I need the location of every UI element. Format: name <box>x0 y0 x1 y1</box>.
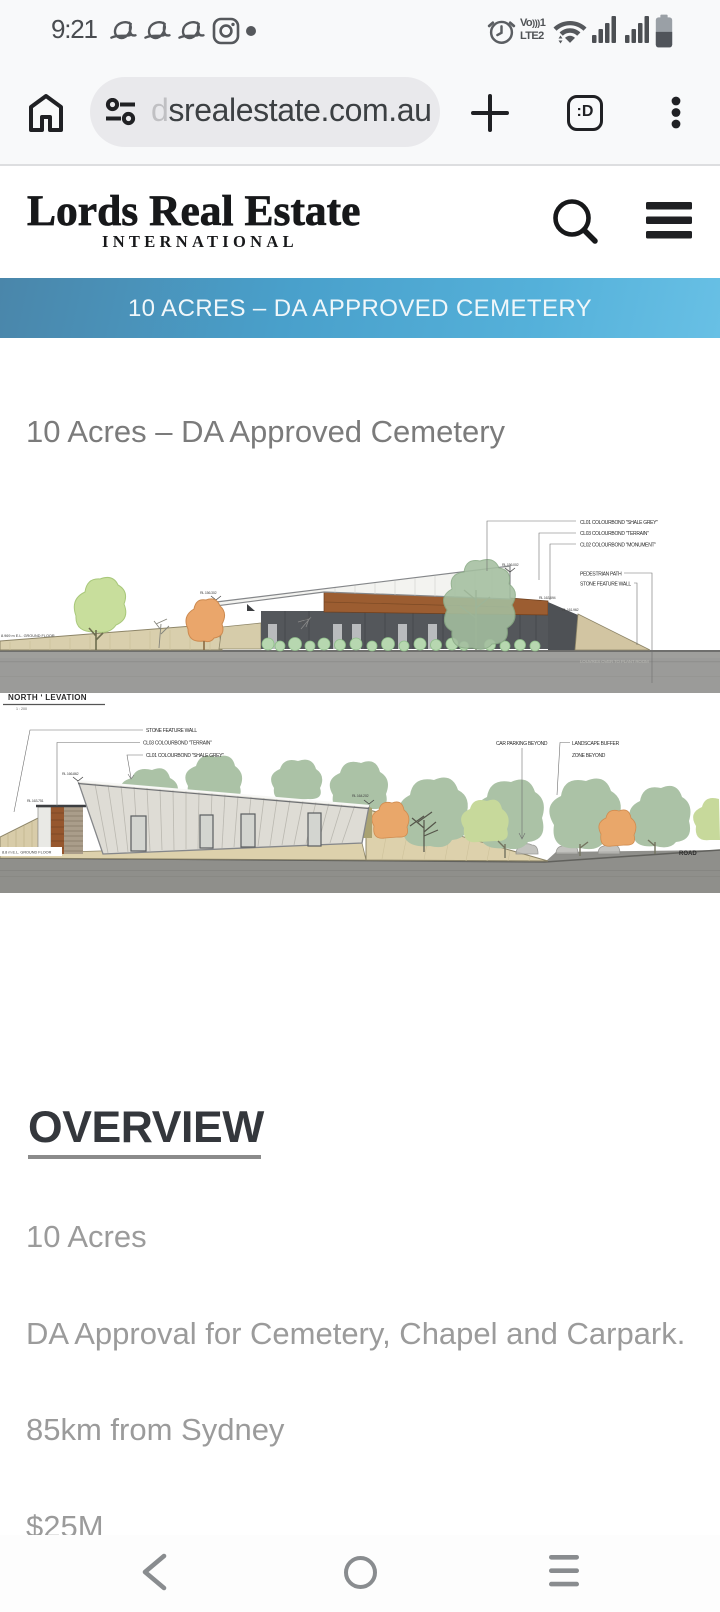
svg-text:CL02 COLOURBOND "MONUMENT": CL02 COLOURBOND "MONUMENT" <box>580 543 656 549</box>
svg-text:PEDESTRIAN PATH: PEDESTRIAN PATH <box>580 572 622 578</box>
svg-text:8.8 m E.L. GROUND FLOOR: 8.8 m E.L. GROUND FLOOR <box>2 851 52 855</box>
svg-text:RL 156.002: RL 156.002 <box>502 563 519 567</box>
svg-text:RL 163.751: RL 163.751 <box>27 799 44 803</box>
svg-text:STONE FEATURE WALL: STONE FEATURE WALL <box>580 582 631 588</box>
svg-text:ZONE BEYOND: ZONE BEYOND <box>572 753 606 759</box>
svg-text:RL 156.302: RL 156.302 <box>200 591 217 595</box>
svg-text:8.969 m E.L. GROUND FLOOR: 8.969 m E.L. GROUND FLOOR <box>1 634 55 638</box>
svg-text:CL01 COLOURBOND "SHALE GREY": CL01 COLOURBOND "SHALE GREY" <box>580 520 658 526</box>
svg-text:CL03 COLOURBOND "TERRAIN": CL03 COLOURBOND "TERRAIN" <box>143 741 212 747</box>
svg-text:ROAD: ROAD <box>679 851 697 857</box>
svg-text:CL01 COLOURBOND "SHALE GREY": CL01 COLOURBOND "SHALE GREY" <box>146 753 224 759</box>
svg-text:RL 166.862: RL 166.862 <box>62 772 79 776</box>
svg-text:CAR PARKING BEYOND: CAR PARKING BEYOND <box>496 741 548 747</box>
svg-text:LOUVRES OVER TO PLANT ROOM: LOUVRES OVER TO PLANT ROOM <box>580 659 649 664</box>
svg-text:CL03 COLOURBOND "TERRAIN": CL03 COLOURBOND "TERRAIN" <box>580 531 649 537</box>
svg-text:STONE FEATURE WALL: STONE FEATURE WALL <box>146 728 197 734</box>
svg-text:LANDSCAPE BUFFER: LANDSCAPE BUFFER <box>572 741 620 747</box>
svg-text:1 : 200: 1 : 200 <box>16 707 27 711</box>
svg-text:RL 163.694: RL 163.694 <box>539 596 556 600</box>
svg-text:RL 161.962: RL 161.962 <box>562 608 579 612</box>
svg-text:RL 164.202: RL 164.202 <box>352 794 369 798</box>
svg-text:NORTH ʹ LEVATION: NORTH ʹ LEVATION <box>8 693 87 702</box>
